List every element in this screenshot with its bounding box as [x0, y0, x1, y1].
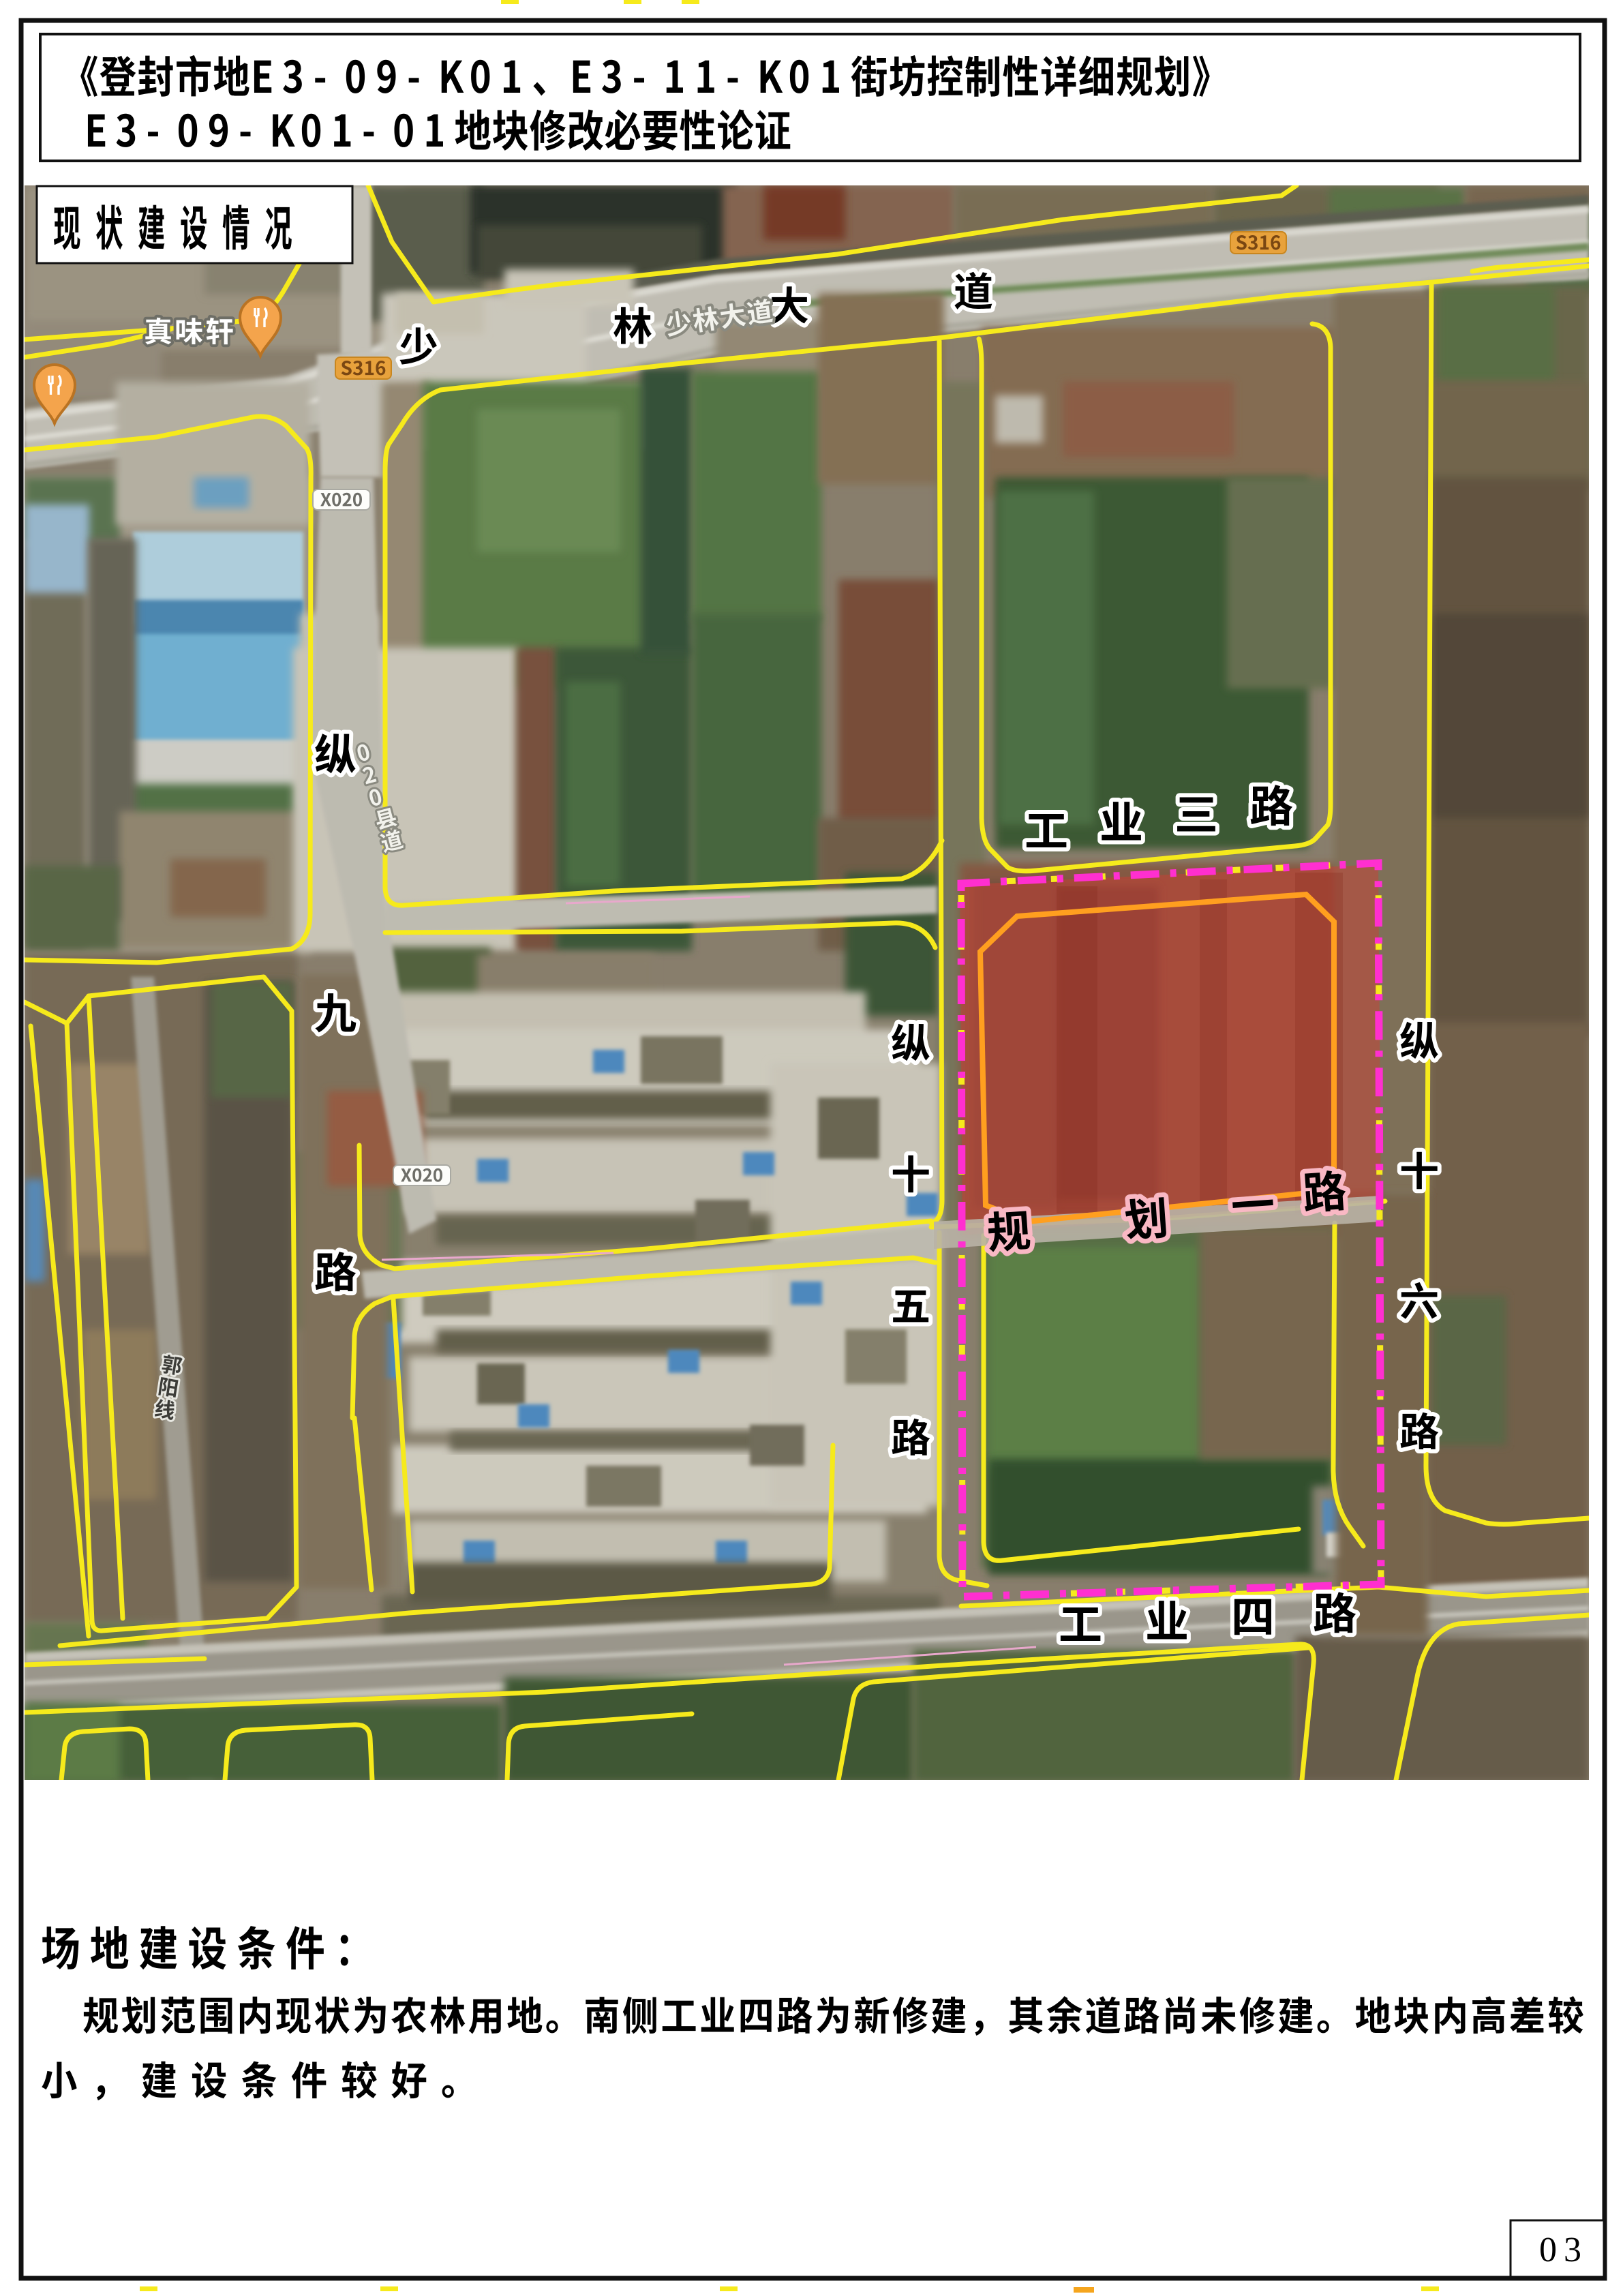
svg-text:0: 0: [1539, 2231, 1557, 2269]
svg-text:3: 3: [1564, 2231, 1581, 2269]
